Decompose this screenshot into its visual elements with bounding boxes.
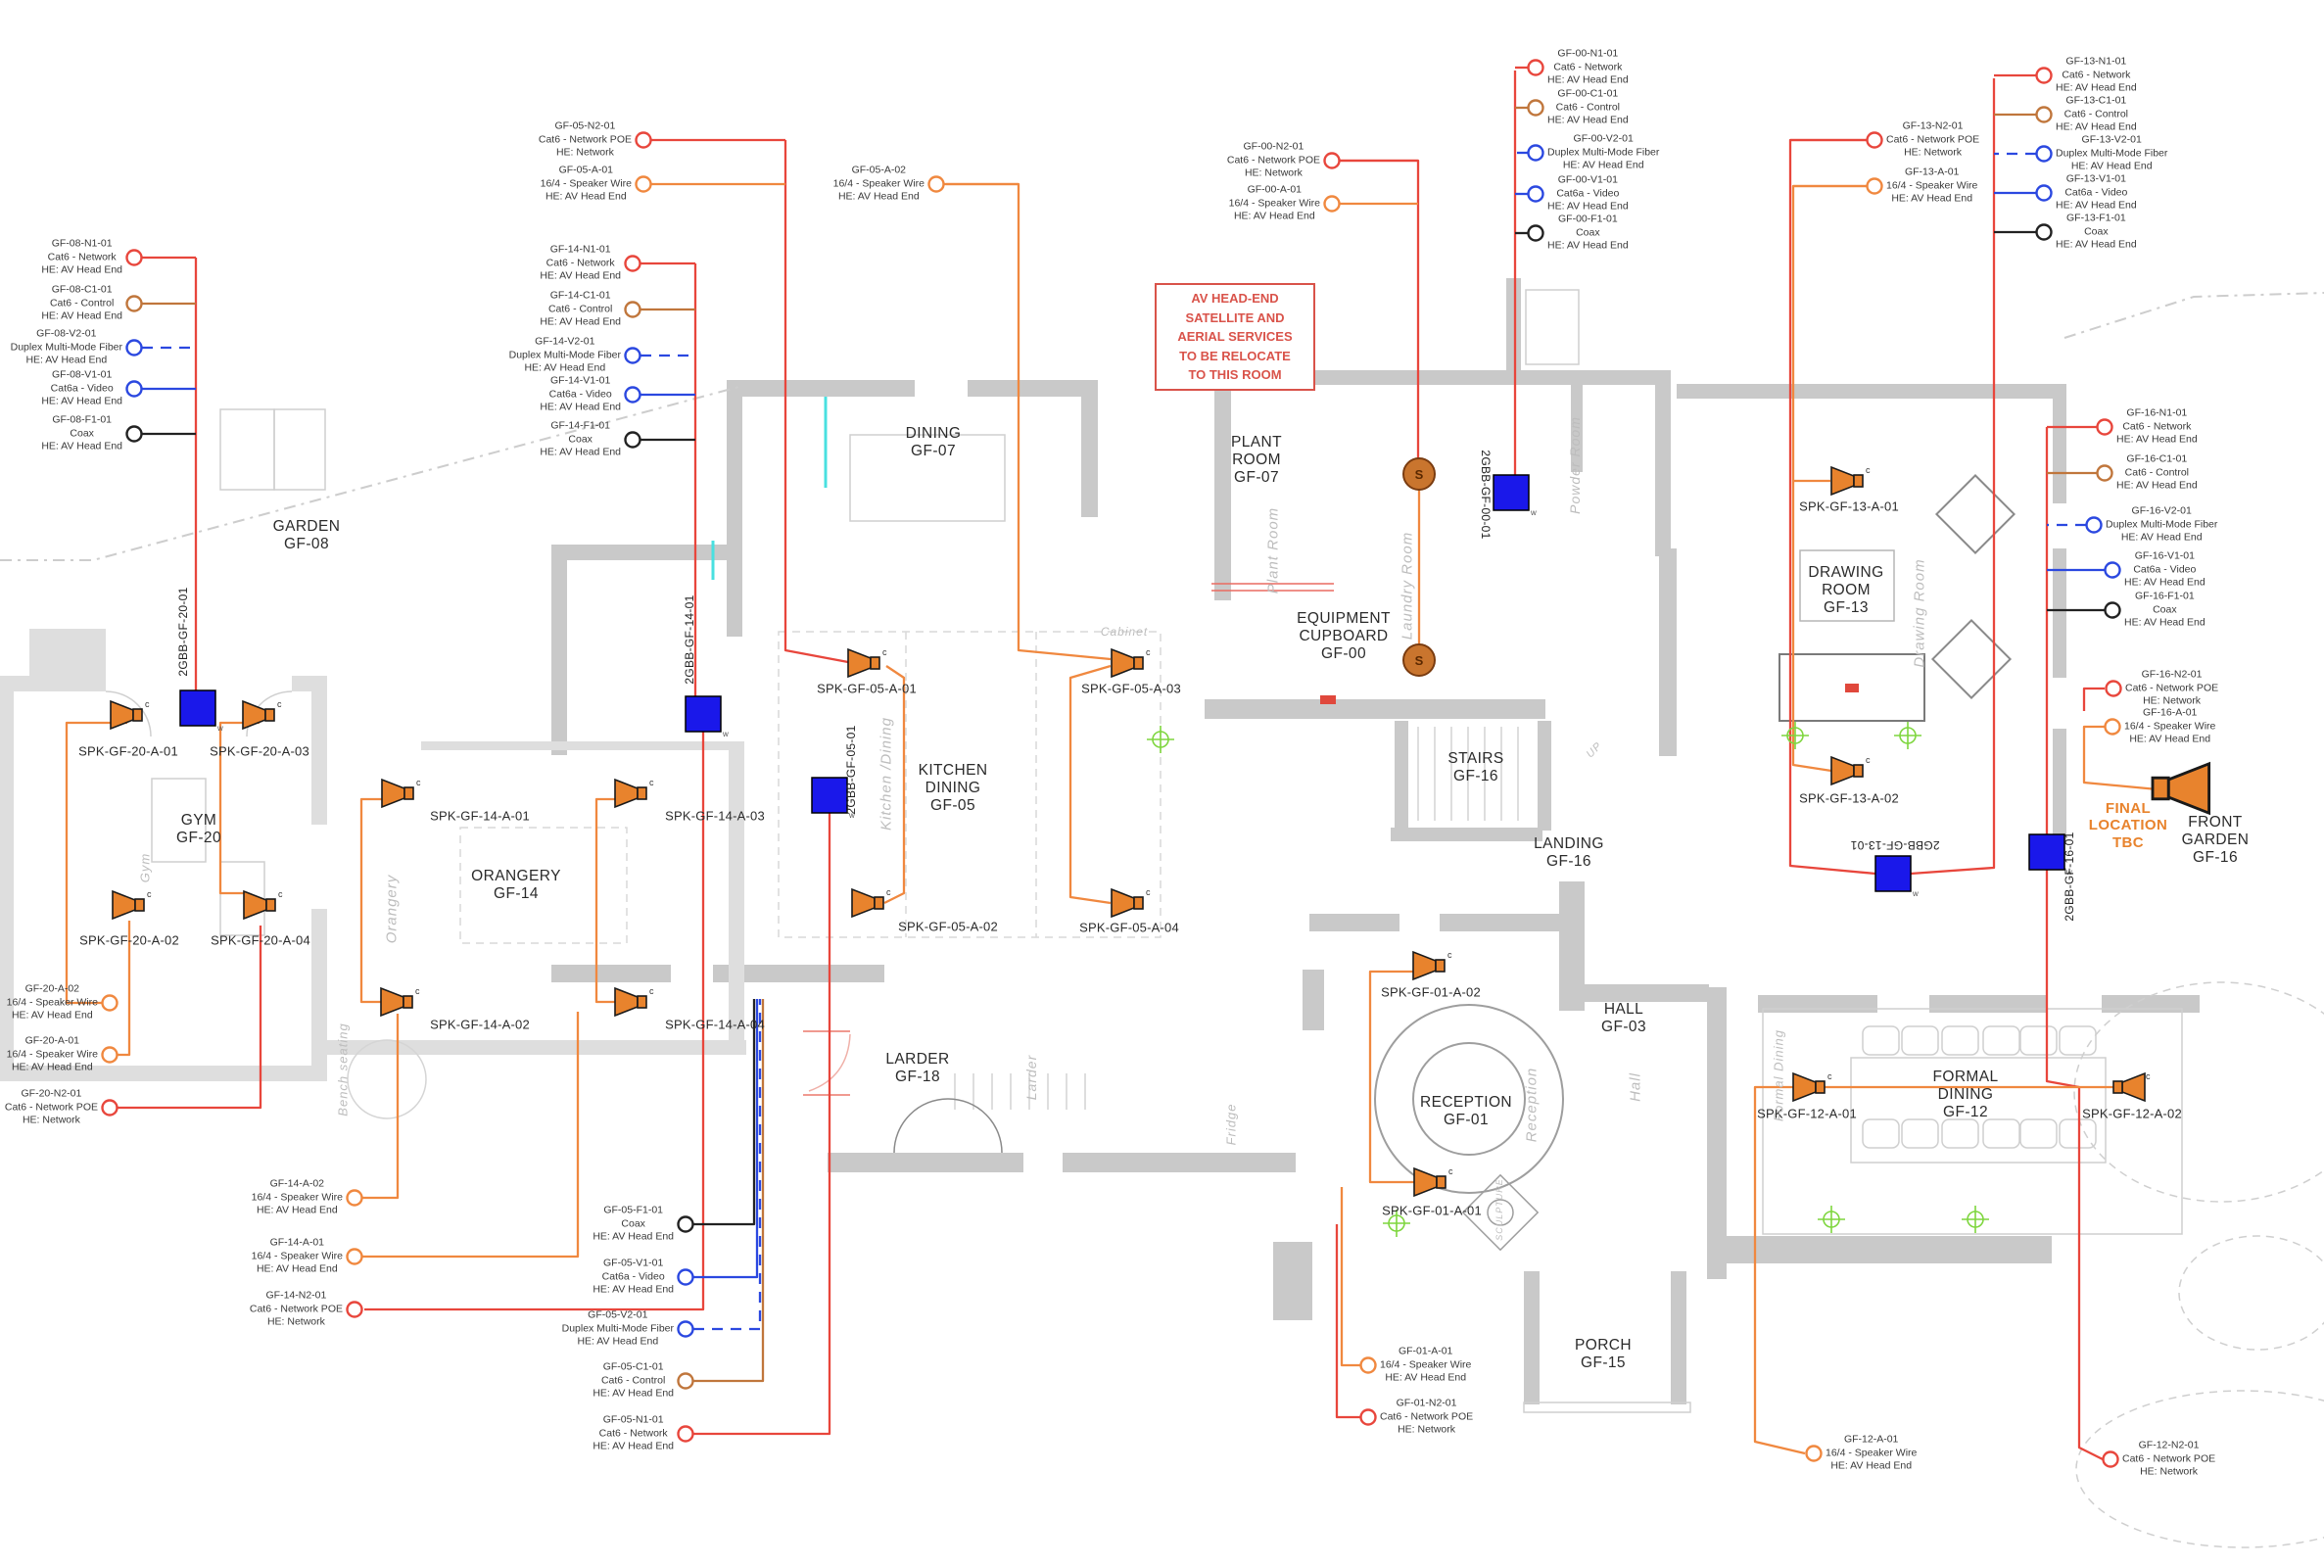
callout-line: HE: AV Head End (1547, 240, 1629, 254)
callout-line: HE: AV Head End (562, 1336, 674, 1350)
cable-callout-GF-00-F1-01: GF-00-F1-01CoaxHE: AV Head End (1547, 214, 1629, 254)
room-label-line: GF-16 (1447, 768, 1503, 785)
callout-line: GF-01-N2-01 (1380, 1398, 1473, 1411)
callout-line: GF-05-V1-01 (593, 1258, 674, 1271)
callout-line: 16/4 - Speaker Wire (252, 1191, 343, 1205)
callout-line: Cat6 - Network POE (1227, 154, 1320, 167)
speaker-label-SPK-GF-20-A-03: SPK-GF-20-A-03 (210, 744, 309, 759)
callout-line: Coax (1547, 226, 1629, 240)
room-label-GF-08: GARDENGF-08 (273, 518, 341, 553)
callout-line: HE: AV Head End (541, 191, 632, 205)
speaker-label-SPK-GF-20-A-01: SPK-GF-20-A-01 (78, 744, 178, 759)
room-label-line: GF-16 (1534, 853, 1604, 871)
cable-callout-GF-08-N1-01: GF-08-N1-01Cat6 - NetworkHE: AV Head End (41, 238, 122, 278)
callout-line: HE: AV Head End (1826, 1460, 1917, 1474)
callout-line: 16/4 - Speaker Wire (1826, 1447, 1917, 1460)
callout-line: Coax (2124, 603, 2205, 617)
cable-callout-GF-14-A-02: GF-14-A-0216/4 - Speaker WireHE: AV Head… (252, 1178, 343, 1218)
callout-line: GF-14-V2-01 (509, 336, 621, 350)
cable-callout-GF-00-A-01: GF-00-A-0116/4 - Speaker WireHE: AV Head… (1229, 184, 1320, 224)
final-location-note: FINALLOCATIONTBC (2089, 800, 2167, 851)
callout-line: HE: AV Head End (540, 402, 621, 415)
callout-line: Cat6 - Control (540, 303, 621, 316)
callout-line: Cat6 - Network (2056, 69, 2137, 82)
callout-line: GF-05-A-02 (833, 165, 925, 178)
room-label-line: ROOM (1808, 582, 1883, 599)
callout-line: Cat6a - Video (41, 382, 122, 396)
plan-text-formal-dining: Formal Dining (1772, 1029, 1786, 1121)
cable-callout-GF-05-V1-01: GF-05-V1-01Cat6a - VideoHE: AV Head End (593, 1258, 674, 1298)
plan-text-up: UP (1585, 740, 1605, 761)
cable-callout-GF-16-V2-01: GF-16-V2-01Duplex Multi-Mode FiberHE: AV… (2106, 505, 2217, 546)
callout-line: GF-13-N2-01 (1886, 120, 1979, 134)
callout-line: GF-05-C1-01 (593, 1361, 674, 1375)
callout-line: HE: AV Head End (593, 1231, 674, 1245)
backbox-label-2GBB-GF-16-01: 2GBB-GF-16-01 (2063, 832, 2076, 921)
note-line: SATELLITE AND (1157, 309, 1313, 328)
speaker-label-SPK-GF-14-A-03: SPK-GF-14-A-03 (665, 809, 765, 824)
callout-line: HE: AV Head End (2124, 617, 2205, 631)
room-label-line: GARDEN (2182, 832, 2250, 849)
room-label-line: PLANT (1231, 434, 1282, 451)
callout-line: GF-08-N1-01 (41, 238, 122, 252)
room-label-line: GF-15 (1575, 1354, 1632, 1372)
room-label-line: DINING (1933, 1086, 1999, 1104)
callout-line: GF-08-F1-01 (41, 414, 122, 428)
cable-callout-GF-12-A-01: GF-12-A-0116/4 - Speaker WireHE: AV Head… (1826, 1434, 1917, 1474)
room-label-GF-05: KITCHENDININGGF-05 (919, 762, 988, 815)
plan-text-bench-seating: Bench seating (336, 1022, 351, 1116)
speaker-label-SPK-GF-13-A-01: SPK-GF-13-A-01 (1799, 499, 1899, 514)
plan-text-reception: Reception (1524, 1068, 1541, 1143)
room-label-line: CUPBOARD (1297, 628, 1391, 645)
callout-line: HE: AV Head End (252, 1263, 343, 1277)
room-label-line: GF-13 (1808, 599, 1883, 617)
cable-callout-GF-05-N1-01: GF-05-N1-01Cat6 - NetworkHE: AV Head End (593, 1414, 674, 1454)
cable-callout-GF-14-V1-01: GF-14-V1-01Cat6a - VideoHE: AV Head End (540, 375, 621, 415)
callout-line: HE: AV Head End (41, 441, 122, 454)
callout-line: Cat6 - Control (2056, 108, 2137, 121)
note-line: AV HEAD-END (1157, 289, 1313, 309)
callout-line: HE: Network (1227, 167, 1320, 181)
room-label-line: LANDING (1534, 835, 1604, 853)
cable-callout-GF-05-F1-01: GF-05-F1-01CoaxHE: AV Head End (593, 1205, 674, 1245)
callout-line: GF-16-F1-01 (2124, 591, 2205, 604)
callout-line: HE: Network (5, 1115, 98, 1128)
callout-line: GF-05-A-01 (541, 165, 632, 178)
plan-text-hall: Hall (1628, 1072, 1644, 1102)
room-label-line: GF-20 (176, 830, 221, 847)
plan-text-drawing-room: Drawing Room (1912, 558, 1928, 667)
callout-line: Cat6 - Network (41, 251, 122, 264)
callout-line: HE: AV Head End (1886, 193, 1977, 207)
callout-line: Cat6a - Video (2124, 563, 2205, 577)
callout-line: HE: AV Head End (11, 355, 122, 368)
room-label-line: GF-12 (1933, 1104, 1999, 1121)
callout-line: GF-13-C1-01 (2056, 95, 2137, 109)
room-label-GF-07: DININGGF-07 (906, 425, 962, 460)
callout-line: Duplex Multi-Mode Fiber (1547, 146, 1659, 160)
callout-line: HE: AV Head End (7, 1010, 98, 1023)
plan-text-orangery: Orangery (384, 875, 401, 944)
callout-line: 16/4 - Speaker Wire (252, 1250, 343, 1263)
plan-text-cabinet: Cabinet (1101, 625, 1148, 639)
cable-callout-GF-13-F1-01: GF-13-F1-01CoaxHE: AV Head End (2056, 213, 2137, 253)
room-label-line: LARDER (885, 1051, 949, 1069)
backbox-label-2GBB-GF-13-01: 2GBB-GF-13-01 (1850, 838, 1939, 852)
speaker-label-SPK-GF-13-A-02: SPK-GF-13-A-02 (1799, 791, 1899, 806)
floor-plan: ccccccccccccccccccwwwwwwSS GF-08-N1-01Ca… (0, 0, 2324, 1568)
cable-callout-GF-12-N2-01: GF-12-N2-01Cat6 - Network POEHE: Network (2122, 1440, 2215, 1480)
speaker-label-SPK-GF-14-A-02: SPK-GF-14-A-02 (430, 1018, 530, 1032)
cable-callout-GF-13-V1-01: GF-13-V1-01Cat6a - VideoHE: AV Head End (2056, 173, 2137, 214)
room-label-GF-20: GYMGF-20 (176, 812, 221, 847)
cable-callout-GF-05-N2-01: GF-05-N2-01Cat6 - Network POEHE: Network (539, 120, 632, 161)
callout-line: HE: AV Head End (2056, 239, 2137, 253)
callout-line: GF-14-C1-01 (540, 290, 621, 304)
room-label-line: GF-14 (471, 885, 561, 903)
room-label-line: GF-01 (1420, 1112, 1512, 1129)
final-location-line: FINAL (2089, 800, 2167, 817)
final-location-line: TBC (2089, 834, 2167, 851)
callout-line: Duplex Multi-Mode Fiber (509, 349, 621, 362)
callout-line: GF-14-N1-01 (540, 244, 621, 258)
room-label-GF-01: RECEPTIONGF-01 (1420, 1094, 1512, 1129)
plan-text-gym: Gym (138, 853, 153, 882)
callout-line: GF-14-F1-01 (540, 420, 621, 434)
room-label-line: GYM (176, 812, 221, 830)
cable-callout-GF-14-N1-01: GF-14-N1-01Cat6 - NetworkHE: AV Head End (540, 244, 621, 284)
plan-text-kitchen-dining: Kitchen /Dining (878, 717, 895, 831)
callout-line: Cat6 - Control (1547, 101, 1629, 115)
callout-line: 16/4 - Speaker Wire (2124, 720, 2215, 734)
callout-line: Cat6a - Video (540, 388, 621, 402)
room-label-GF-14: ORANGERYGF-14 (471, 868, 561, 903)
callout-line: Duplex Multi-Mode Fiber (2056, 147, 2167, 161)
callout-line: HE: Network (539, 147, 632, 161)
room-label-line: GF-00 (1297, 645, 1391, 663)
speaker-label-SPK-GF-14-A-04: SPK-GF-14-A-04 (665, 1018, 765, 1032)
callout-line: HE: AV Head End (41, 264, 122, 278)
callout-line: GF-20-N2-01 (5, 1088, 98, 1102)
callout-line: HE: AV Head End (1547, 115, 1629, 128)
room-label-GF-15: PORCHGF-15 (1575, 1337, 1632, 1372)
room-label-line: ORANGERY (471, 868, 561, 885)
callout-line: HE: AV Head End (833, 191, 925, 205)
cable-callout-GF-08-C1-01: GF-08-C1-01Cat6 - ControlHE: AV Head End (41, 284, 122, 324)
cable-callout-GF-16-N1-01: GF-16-N1-01Cat6 - NetworkHE: AV Head End (2116, 407, 2198, 448)
room-label-line: DINING (906, 425, 962, 443)
callout-line: GF-14-A-01 (252, 1237, 343, 1251)
plan-text-fridge: Fridge (1224, 1104, 1239, 1146)
callout-line: Duplex Multi-Mode Fiber (11, 341, 122, 355)
callout-line: HE: AV Head End (2056, 121, 2137, 135)
callout-line: GF-13-V1-01 (2056, 173, 2137, 187)
speaker-label-SPK-GF-20-A-04: SPK-GF-20-A-04 (211, 933, 310, 948)
room-label-line: DINING (919, 780, 988, 797)
speaker-label-SPK-GF-05-A-01: SPK-GF-05-A-01 (817, 682, 917, 696)
callout-line: GF-00-A-01 (1229, 184, 1320, 198)
room-label-line: GARDEN (273, 518, 341, 536)
speaker-label-SPK-GF-12-A-02: SPK-GF-12-A-02 (2082, 1107, 2182, 1121)
cable-callout-GF-00-C1-01: GF-00-C1-01Cat6 - ControlHE: AV Head End (1547, 88, 1629, 128)
callout-line: GF-05-N2-01 (539, 120, 632, 134)
speaker-label-SPK-GF-01-A-02: SPK-GF-01-A-02 (1381, 985, 1481, 1000)
callout-line: Cat6 - Network (540, 257, 621, 270)
callout-line: HE: AV Head End (1547, 74, 1629, 88)
backbox-label-2GBB-GF-00-01: 2GBB-GF-00-01 (1479, 450, 1493, 539)
callout-line: 16/4 - Speaker Wire (7, 1048, 98, 1062)
callout-line: GF-16-A-01 (2124, 707, 2215, 721)
cable-callout-GF-14-A-01: GF-14-A-0116/4 - Speaker WireHE: AV Head… (252, 1237, 343, 1277)
callout-line: GF-05-N1-01 (593, 1414, 674, 1428)
room-label-line: KITCHEN (919, 762, 988, 780)
cable-callout-GF-00-V1-01: GF-00-V1-01Cat6a - VideoHE: AV Head End (1547, 174, 1629, 214)
plan-text-powder-room: Powder Room (1567, 416, 1583, 514)
callout-line: Coax (2056, 225, 2137, 239)
callout-line: HE: AV Head End (593, 1284, 674, 1298)
cable-callout-GF-08-V1-01: GF-08-V1-01Cat6a - VideoHE: AV Head End (41, 369, 122, 409)
callout-line: GF-20-A-01 (7, 1035, 98, 1049)
callout-line: HE: AV Head End (7, 1062, 98, 1075)
cable-callout-GF-13-N1-01: GF-13-N1-01Cat6 - NetworkHE: AV Head End (2056, 56, 2137, 96)
callout-line: GF-16-N1-01 (2116, 407, 2198, 421)
room-label-line: PORCH (1575, 1337, 1632, 1354)
callout-line: Cat6 - Network POE (2122, 1452, 2215, 1466)
callout-line: Cat6 - Control (41, 297, 122, 310)
room-label-line: DRAWING (1808, 564, 1883, 582)
callout-line: GF-14-A-02 (252, 1178, 343, 1192)
cable-callout-GF-14-V2-01: GF-14-V2-01Duplex Multi-Mode FiberHE: AV… (509, 336, 621, 376)
cable-callout-GF-00-V2-01: GF-00-V2-01Duplex Multi-Mode FiberHE: AV… (1547, 133, 1659, 173)
room-label-line: EQUIPMENT (1297, 610, 1391, 628)
callout-line: GF-13-V2-01 (2056, 134, 2167, 148)
cable-callout-GF-05-V2-01: GF-05-V2-01Duplex Multi-Mode FiberHE: AV… (562, 1309, 674, 1350)
cable-callout-GF-20-A-01: GF-20-A-0116/4 - Speaker WireHE: AV Head… (7, 1035, 98, 1075)
cable-callout-GF-13-N2-01: GF-13-N2-01Cat6 - Network POEHE: Network (1886, 120, 1979, 161)
cable-callout-GF-14-C1-01: GF-14-C1-01Cat6 - ControlHE: AV Head End (540, 290, 621, 330)
cable-callout-GF-14-N2-01: GF-14-N2-01Cat6 - Network POEHE: Network (250, 1290, 343, 1330)
backbox-label-2GBB-GF-05-01: 2GBB-GF-05-01 (844, 725, 858, 814)
cable-callout-GF-14-F1-01: GF-14-F1-01CoaxHE: AV Head End (540, 420, 621, 460)
callout-line: 16/4 - Speaker Wire (1886, 179, 1977, 193)
room-label-line: GF-16 (2182, 849, 2250, 867)
room-label-line: ROOM (1231, 451, 1282, 469)
cable-callout-GF-05-A-01: GF-05-A-0116/4 - Speaker WireHE: AV Head… (541, 165, 632, 205)
callout-line: GF-01-A-01 (1380, 1346, 1471, 1359)
callout-line: Coax (593, 1217, 674, 1231)
callout-line: HE: AV Head End (2056, 200, 2137, 214)
room-label-GF-07: PLANTROOMGF-07 (1231, 434, 1282, 487)
cable-callout-GF-08-F1-01: GF-08-F1-01CoaxHE: AV Head End (41, 414, 122, 454)
callout-line: GF-00-V2-01 (1547, 133, 1659, 147)
callout-line: HE: AV Head End (2116, 434, 2198, 448)
speaker-label-SPK-GF-01-A-01: SPK-GF-01-A-01 (1382, 1204, 1482, 1218)
callout-line: 16/4 - Speaker Wire (1229, 197, 1320, 211)
cable-callout-GF-13-C1-01: GF-13-C1-01Cat6 - ControlHE: AV Head End (2056, 95, 2137, 135)
room-label-line: GF-07 (1231, 469, 1282, 487)
callout-line: HE: AV Head End (1229, 211, 1320, 224)
room-label-GF-03: HALLGF-03 (1601, 1001, 1646, 1036)
room-label-line: RECEPTION (1420, 1094, 1512, 1112)
callout-line: Cat6 - Network (1547, 61, 1629, 74)
speaker-label-SPK-GF-05-A-03: SPK-GF-05-A-03 (1081, 682, 1181, 696)
callout-line: Cat6 - Network (593, 1427, 674, 1441)
room-label-line: STAIRS (1447, 750, 1503, 768)
callout-line: GF-14-N2-01 (250, 1290, 343, 1304)
callout-line: GF-00-F1-01 (1547, 214, 1629, 227)
callout-line: HE: AV Head End (1547, 201, 1629, 214)
callout-line: HE: AV Head End (2106, 532, 2217, 546)
room-label-GF-16: STAIRSGF-16 (1447, 750, 1503, 785)
callout-line: 16/4 - Speaker Wire (833, 177, 925, 191)
callout-line: Cat6 - Network POE (1380, 1410, 1473, 1424)
cable-callout-GF-13-V2-01: GF-13-V2-01Duplex Multi-Mode FiberHE: AV… (2056, 134, 2167, 174)
callout-line: Cat6 - Control (593, 1374, 674, 1388)
callout-line: Cat6 - Network POE (2125, 682, 2218, 695)
room-label-line: GF-18 (885, 1069, 949, 1086)
callout-line: Cat6a - Video (2056, 186, 2137, 200)
callout-line: Cat6 - Control (2116, 466, 2198, 480)
callout-line: GF-16-V2-01 (2106, 505, 2217, 519)
speaker-label-SPK-GF-05-A-04: SPK-GF-05-A-04 (1079, 921, 1179, 935)
cable-callout-GF-00-N2-01: GF-00-N2-01Cat6 - Network POEHE: Network (1227, 141, 1320, 181)
callout-line: GF-00-N1-01 (1547, 48, 1629, 62)
room-label-line: HALL (1601, 1001, 1646, 1019)
callout-line: GF-00-V1-01 (1547, 174, 1629, 188)
callout-line: GF-00-C1-01 (1547, 88, 1629, 102)
callout-line: Coax (540, 433, 621, 447)
callout-line: HE: Network (1886, 147, 1979, 161)
room-label-GF-18: LARDERGF-18 (885, 1051, 949, 1086)
callout-line: HE: AV Head End (1547, 160, 1659, 173)
callout-line: GF-20-A-02 (7, 983, 98, 997)
room-label-GF-16: FRONTGARDENGF-16 (2182, 814, 2250, 867)
callout-line: GF-13-F1-01 (2056, 213, 2137, 226)
cable-callout-GF-05-A-02: GF-05-A-0216/4 - Speaker WireHE: AV Head… (833, 165, 925, 205)
room-label-GF-13: DRAWINGROOMGF-13 (1808, 564, 1883, 617)
callout-line: GF-13-A-01 (1886, 166, 1977, 180)
cable-callout-GF-00-N1-01: GF-00-N1-01Cat6 - NetworkHE: AV Head End (1547, 48, 1629, 88)
cable-callout-GF-20-N2-01: GF-20-N2-01Cat6 - Network POEHE: Network (5, 1088, 98, 1128)
callout-line: HE: Network (2122, 1466, 2215, 1480)
cable-callout-GF-20-A-02: GF-20-A-0216/4 - Speaker WireHE: AV Head… (7, 983, 98, 1023)
speaker-label-SPK-GF-05-A-02: SPK-GF-05-A-02 (898, 920, 998, 934)
callout-line: Duplex Multi-Mode Fiber (2106, 518, 2217, 532)
cable-callout-GF-16-V1-01: GF-16-V1-01Cat6a - VideoHE: AV Head End (2124, 550, 2205, 591)
note-line: TO THIS ROOM (1157, 365, 1313, 385)
plan-text-laundry-room: Laundry Room (1399, 532, 1416, 640)
callout-line: Cat6a - Video (1547, 187, 1629, 201)
speaker-label-SPK-GF-14-A-01: SPK-GF-14-A-01 (430, 809, 530, 824)
room-label-line: GF-05 (919, 797, 988, 815)
plan-text-larder: Larder (1023, 1055, 1039, 1100)
callout-line: HE: AV Head End (593, 1441, 674, 1454)
room-label-GF-00: EQUIPMENTCUPBOARDGF-00 (1297, 610, 1391, 663)
backbox-label-2GBB-GF-20-01: 2GBB-GF-20-01 (176, 587, 190, 676)
callout-line: HE: AV Head End (540, 270, 621, 284)
callout-line: HE: AV Head End (2124, 734, 2215, 747)
cable-callout-GF-16-F1-01: GF-16-F1-01CoaxHE: AV Head End (2124, 591, 2205, 631)
final-location-line: LOCATION (2089, 817, 2167, 833)
callout-line: 16/4 - Speaker Wire (7, 996, 98, 1010)
callout-line: HE: AV Head End (509, 362, 621, 376)
callout-line: Cat6 - Network (2116, 420, 2198, 434)
callout-line: GF-16-N2-01 (2125, 669, 2218, 683)
callout-line: 16/4 - Speaker Wire (1380, 1358, 1471, 1372)
room-label-line: GF-07 (906, 443, 962, 460)
callout-line: 16/4 - Speaker Wire (541, 177, 632, 191)
callout-line: Cat6 - Network POE (5, 1101, 98, 1115)
cable-callout-GF-16-N2-01: GF-16-N2-01Cat6 - Network POEHE: Network (2125, 669, 2218, 709)
callout-line: GF-12-N2-01 (2122, 1440, 2215, 1453)
plan-text-sculpture: SCULPTURE (1494, 1178, 1504, 1241)
room-label-line: FORMAL (1933, 1069, 1999, 1086)
cable-callout-GF-01-N2-01: GF-01-N2-01Cat6 - Network POEHE: Network (1380, 1398, 1473, 1438)
callout-line: HE: AV Head End (593, 1388, 674, 1402)
callout-line: GF-13-N1-01 (2056, 56, 2137, 70)
callout-line: GF-12-A-01 (1826, 1434, 1917, 1448)
callout-line: HE: AV Head End (41, 310, 122, 324)
callout-line: Coax (41, 427, 122, 441)
callout-line: HE: AV Head End (540, 316, 621, 330)
callout-line: HE: AV Head End (41, 396, 122, 409)
callout-line: HE: AV Head End (252, 1205, 343, 1218)
speaker-label-SPK-GF-20-A-02: SPK-GF-20-A-02 (79, 933, 179, 948)
room-label-line: GF-03 (1601, 1019, 1646, 1036)
callout-line: HE: AV Head End (2116, 480, 2198, 494)
callout-line: HE: Network (250, 1316, 343, 1330)
room-label-GF-12: FORMALDININGGF-12 (1933, 1069, 1999, 1121)
plan-text-plant-room: Plant Room (1265, 507, 1282, 594)
cable-callout-GF-01-A-01: GF-01-A-0116/4 - Speaker WireHE: AV Head… (1380, 1346, 1471, 1386)
cable-callout-GF-16-C1-01: GF-16-C1-01Cat6 - ControlHE: AV Head End (2116, 453, 2198, 494)
callout-line: GF-16-C1-01 (2116, 453, 2198, 467)
callout-line: GF-14-V1-01 (540, 375, 621, 389)
callout-line: HE: AV Head End (2056, 161, 2167, 174)
callout-line: Cat6 - Network POE (539, 133, 632, 147)
note-line: TO BE RELOCATE (1157, 347, 1313, 366)
callout-line: HE: Network (1380, 1424, 1473, 1438)
callout-line: GF-08-C1-01 (41, 284, 122, 298)
room-label-line: FRONT (2182, 814, 2250, 832)
cable-callout-GF-16-A-01: GF-16-A-0116/4 - Speaker WireHE: AV Head… (2124, 707, 2215, 747)
label-layer: GF-08-N1-01Cat6 - NetworkHE: AV Head End… (0, 0, 2324, 1568)
cable-callout-GF-08-V2-01: GF-08-V2-01Duplex Multi-Mode FiberHE: AV… (11, 328, 122, 368)
callout-line: Cat6 - Network POE (250, 1303, 343, 1316)
callout-line: HE: AV Head End (2056, 82, 2137, 96)
callout-line: HE: AV Head End (540, 447, 621, 460)
callout-line: GF-00-N2-01 (1227, 141, 1320, 155)
callout-line: GF-05-F1-01 (593, 1205, 674, 1218)
room-label-line: GF-08 (273, 536, 341, 553)
callout-line: GF-08-V1-01 (41, 369, 122, 383)
cable-callout-GF-05-C1-01: GF-05-C1-01Cat6 - ControlHE: AV Head End (593, 1361, 674, 1402)
callout-line: HE: AV Head End (2124, 577, 2205, 591)
callout-line: Duplex Multi-Mode Fiber (562, 1322, 674, 1336)
cable-callout-GF-13-A-01: GF-13-A-0116/4 - Speaker WireHE: AV Head… (1886, 166, 1977, 207)
callout-line: HE: AV Head End (1380, 1372, 1471, 1386)
callout-line: GF-16-V1-01 (2124, 550, 2205, 564)
note-line: AERIAL SERVICES (1157, 327, 1313, 347)
callout-line: Cat6a - Video (593, 1270, 674, 1284)
av-headend-note: AV HEAD-ENDSATELLITE ANDAERIAL SERVICEST… (1155, 283, 1315, 391)
backbox-label-2GBB-GF-14-01: 2GBB-GF-14-01 (683, 594, 696, 684)
room-label-GF-16: LANDINGGF-16 (1534, 835, 1604, 871)
callout-line: GF-08-V2-01 (11, 328, 122, 342)
callout-line: Cat6 - Network POE (1886, 133, 1979, 147)
callout-line: GF-05-V2-01 (562, 1309, 674, 1323)
